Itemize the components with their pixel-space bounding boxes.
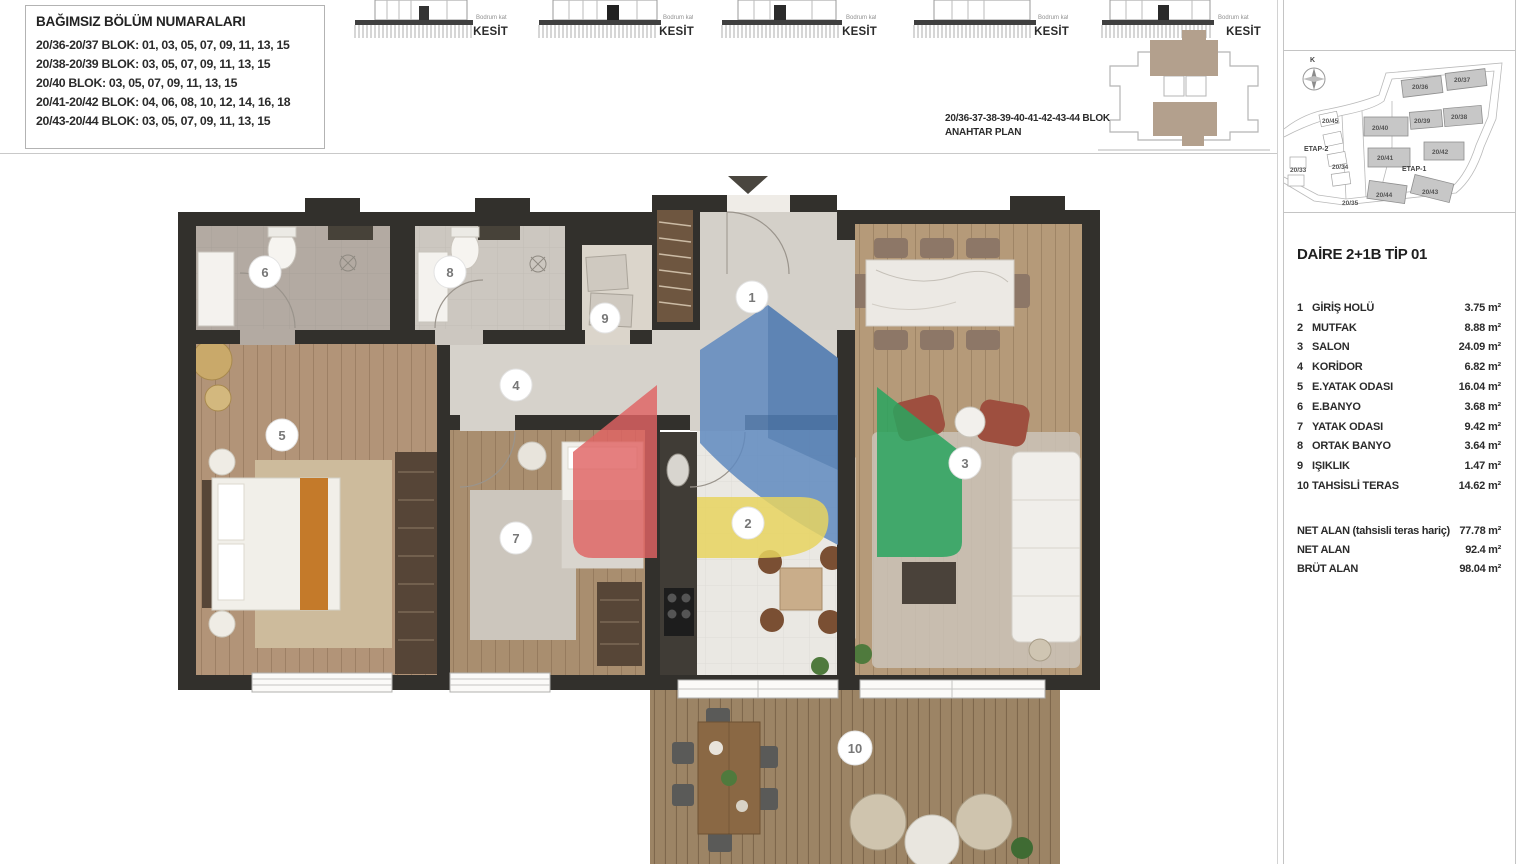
decor-straw-mat <box>192 340 232 380</box>
svg-text:20/42: 20/42 <box>1432 149 1449 156</box>
table-row: 9IŞIKLIK1.47 m² <box>1297 456 1501 476</box>
main-right-border <box>1277 0 1278 864</box>
kesit-label: KESİT <box>842 26 877 38</box>
svg-text:1: 1 <box>748 290 755 305</box>
svg-text:Bodrum kat: Bodrum kat <box>846 15 876 21</box>
floor-plan-drawing: 1 2 3 4 5 6 7 8 9 10 <box>160 170 1115 864</box>
kitchen-table <box>780 568 822 610</box>
svg-text:6: 6 <box>261 265 268 280</box>
key-plan <box>1098 28 1270 152</box>
bed5-runner <box>300 478 328 610</box>
room-marker-6: 6 <box>249 256 281 288</box>
total-row: BRÜT ALAN98.04 m² <box>1297 559 1501 578</box>
room-marker-5: 5 <box>266 419 298 451</box>
kitchen-sink <box>667 454 689 486</box>
room-marker-9: 9 <box>590 303 620 333</box>
kesit-label: KESİT <box>1034 26 1069 38</box>
block-numbers-line: 20/41-20/42 BLOK: 04, 06, 08, 10, 12, 14… <box>36 93 314 112</box>
table-row: 6E.BANYO3.68 m² <box>1297 397 1501 417</box>
terrace-sliding-door <box>860 680 1045 698</box>
svg-text:20/40: 20/40 <box>1372 125 1389 132</box>
room-marker-7: 7 <box>500 522 532 554</box>
section-sketch: Bodrum kat <box>347 0 507 46</box>
svg-text:20/41: 20/41 <box>1377 155 1394 162</box>
keyplan-caption-line1: 20/36-37-38-39-40-41-42-43-44 BLOK <box>945 112 1120 126</box>
wicker-chair <box>956 794 1012 850</box>
svg-text:20/44: 20/44 <box>1376 192 1393 199</box>
room-area-table: 1GİRİŞ HOLÜ3.75 m² 2MUTFAK8.88 m² 3SALON… <box>1297 298 1501 496</box>
pouf <box>209 449 235 475</box>
coffee-table <box>902 562 956 604</box>
section-floor-note: Bodrum kat <box>476 15 507 21</box>
room-marker-4: 4 <box>500 369 532 401</box>
keyplan-caption: 20/36-37-38-39-40-41-42-43-44 BLOK ANAHT… <box>945 112 1120 139</box>
section-drawing-3: Bodrum kat KESİT <box>716 0 891 48</box>
table-row: 5E.YATAK ODASI16.04 m² <box>1297 377 1501 397</box>
wardrobe5 <box>395 452 437 674</box>
svg-text:20/33: 20/33 <box>1290 167 1307 174</box>
shaft-grille <box>657 210 693 322</box>
site-plan-map: K 20/36 20/37 20/40 20/39 20/38 <box>1284 51 1515 212</box>
bath6-vanity <box>198 252 234 326</box>
block-numbers-line: 20/38-20/39 BLOK: 03, 05, 07, 09, 11, 13… <box>36 55 314 74</box>
table-row: 2MUTFAK8.88 m² <box>1297 318 1501 338</box>
room-marker-10: 10 <box>838 731 872 765</box>
svg-text:4: 4 <box>512 378 520 393</box>
section-drawing-4: Bodrum kat KESİT <box>908 0 1083 48</box>
room-marker-2: 2 <box>732 507 764 539</box>
svg-text:7: 7 <box>512 531 519 546</box>
svg-text:Bodrum kat: Bodrum kat <box>1038 15 1068 21</box>
svg-text:3: 3 <box>961 456 968 471</box>
table-row: 8ORTAK BANYO3.64 m² <box>1297 437 1501 457</box>
svg-text:20/43: 20/43 <box>1422 189 1439 196</box>
floor-lamp <box>1029 639 1051 661</box>
dining-table-marble <box>866 260 1014 326</box>
independent-section-numbers-box: BAĞIMSIZ BÖLÜM NUMARALARI 20/36-20/37 BL… <box>25 5 325 149</box>
lightwell-unit <box>586 255 628 292</box>
svg-text:20/34: 20/34 <box>1332 164 1349 171</box>
side-tray-table <box>955 407 985 437</box>
pouf <box>209 611 235 637</box>
total-row: NET ALAN (tahsisli teras hariç)77.78 m² <box>1297 521 1501 540</box>
apartment-type-title: DAİRE 2+1B TİP 01 <box>1297 246 1427 263</box>
terrace-plant <box>1011 837 1033 859</box>
floor-plan-sheet: { "info_box": { "title": "BAĞIMSIZ BÖLÜM… <box>0 0 1536 864</box>
svg-text:Bodrum kat: Bodrum kat <box>663 15 693 21</box>
sofa <box>1012 452 1080 642</box>
right-sidebar: K 20/36 20/37 20/40 20/39 20/38 <box>1283 0 1516 864</box>
bedside-table <box>518 442 546 470</box>
svg-text:Bodrum kat: Bodrum kat <box>1218 15 1249 21</box>
info-box-title: BAĞIMSIZ BÖLÜM NUMARALARI <box>36 14 314 29</box>
area-totals: NET ALAN (tahsisli teras hariç)77.78 m² … <box>1297 521 1501 578</box>
svg-text:20/35: 20/35 <box>1342 200 1359 207</box>
svg-text:20/45: 20/45 <box>1322 118 1339 125</box>
block-numbers-line: 20/40 BLOK: 03, 05, 07, 09, 11, 13, 15 <box>36 74 314 93</box>
wall-right <box>1082 210 1100 690</box>
table-row: 4KORİDOR6.82 m² <box>1297 357 1501 377</box>
svg-text:20/37: 20/37 <box>1454 77 1471 84</box>
wardrobe7 <box>597 582 642 666</box>
wicker-chair <box>850 794 906 850</box>
table-row: 1GİRİŞ HOLÜ3.75 m² <box>1297 298 1501 318</box>
svg-text:2: 2 <box>744 516 751 531</box>
etap2-label: ETAP-2 <box>1304 146 1328 153</box>
block-numbers-line: 20/43-20/44 BLOK: 03, 05, 07, 09, 11, 13… <box>36 112 314 131</box>
room-marker-8: 8 <box>434 256 466 288</box>
section-drawing-2: Bodrum kat KESİT <box>533 0 708 48</box>
compass-label: K <box>1310 57 1315 64</box>
svg-text:20/39: 20/39 <box>1414 118 1431 125</box>
room-marker-3: 3 <box>949 447 981 479</box>
wall-left <box>178 212 196 690</box>
decor-straw-mat <box>205 385 231 411</box>
table-row: 3SALON24.09 m² <box>1297 338 1501 358</box>
pebble-table <box>905 815 959 864</box>
window-sill <box>252 673 392 692</box>
svg-text:10: 10 <box>848 741 862 756</box>
horizontal-divider <box>0 153 1277 154</box>
svg-text:5: 5 <box>278 428 285 443</box>
kitchen-plant <box>811 657 829 675</box>
entrance-arrow-icon <box>728 176 768 194</box>
keyplan-caption-line2: ANAHTAR PLAN <box>945 126 1120 140</box>
terrace <box>650 690 1060 864</box>
kesit-label: KESİT <box>659 26 694 38</box>
svg-text:8: 8 <box>446 265 453 280</box>
rug7 <box>470 490 576 640</box>
section-drawing-1: Bodrum kat KESİT <box>347 0 522 48</box>
block-numbers-line: 20/36-20/37 BLOK: 01, 03, 05, 07, 09, 11… <box>36 36 314 55</box>
svg-text:20/36: 20/36 <box>1412 84 1429 91</box>
window-sill <box>450 673 550 692</box>
kesit-label: KESİT <box>473 26 508 38</box>
svg-text:9: 9 <box>601 311 608 326</box>
total-row: NET ALAN92.4 m² <box>1297 540 1501 559</box>
bed5-headboard <box>202 480 212 608</box>
table-row: 10TAHSİSLİ TERAS14.62 m² <box>1297 476 1501 496</box>
svg-text:20/38: 20/38 <box>1451 114 1468 121</box>
etap1-label: ETAP-1 <box>1402 166 1426 173</box>
terrace-sliding-door <box>678 680 838 698</box>
compass-icon: K <box>1303 57 1325 90</box>
table-row: 7YATAK ODASI9.42 m² <box>1297 417 1501 437</box>
room-marker-1: 1 <box>736 281 768 313</box>
